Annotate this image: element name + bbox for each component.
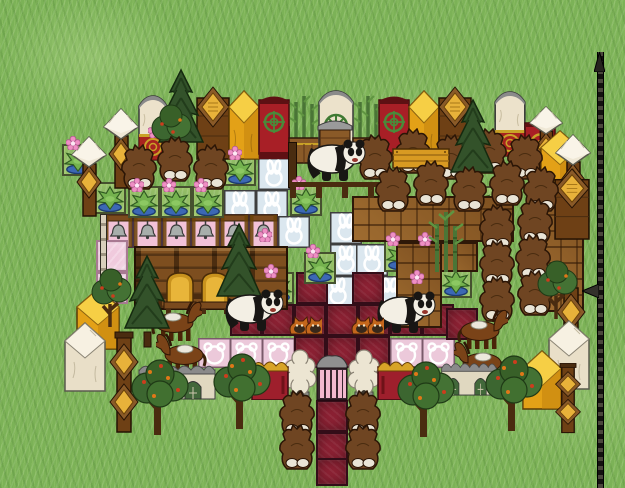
- red-panel-green-medallion-art: [258, 94, 290, 160]
- bunny-floor-tile[interactable]: [258, 158, 290, 190]
- bear-statue-art: [374, 166, 412, 212]
- bamboo-plant-art: [426, 206, 464, 272]
- bell-tile-art: [133, 214, 162, 248]
- spear-blade-icon: [582, 284, 599, 298]
- bell-tile-art: [162, 214, 191, 248]
- apple-tree[interactable]: [210, 346, 274, 430]
- spear[interactable]: [582, 52, 604, 488]
- pink-flower-art: [306, 244, 320, 258]
- bear-statue[interactable]: [374, 166, 412, 212]
- pink-flower[interactable]: [130, 178, 144, 192]
- bear-statue-art: [278, 424, 316, 470]
- fox-pair-art: [350, 312, 384, 336]
- bear-statue[interactable]: [156, 136, 194, 182]
- bear-statue[interactable]: [278, 424, 316, 470]
- bear-statue-art: [344, 424, 382, 470]
- pink-flower-art: [162, 178, 176, 192]
- white-block-art: [64, 322, 106, 392]
- plant-bed-tile-art: [194, 188, 222, 216]
- bamboo-plant[interactable]: [426, 206, 464, 272]
- apple-sapling-art: [534, 258, 580, 320]
- pink-flower[interactable]: [386, 232, 400, 246]
- apple-tree-art: [394, 354, 458, 438]
- apple-tree-art: [128, 352, 192, 436]
- pink-flower-art: [66, 136, 80, 150]
- bear-statue-art: [412, 160, 450, 206]
- pink-flower-art: [228, 146, 242, 160]
- fox-pair[interactable]: [350, 312, 384, 336]
- bear-statue[interactable]: [344, 424, 382, 470]
- plant-bed-tile-art: [130, 188, 158, 216]
- pink-flower-art: [264, 264, 278, 278]
- spear-tip-icon: [594, 52, 605, 72]
- pink-flower[interactable]: [194, 178, 208, 192]
- panda[interactable]: [302, 138, 366, 182]
- pink-flower[interactable]: [162, 178, 176, 192]
- apple-tree-art: [482, 348, 546, 432]
- apple-tree[interactable]: [128, 352, 192, 436]
- spear-pole[interactable]: [597, 52, 604, 488]
- pink-flower-art: [386, 232, 400, 246]
- bell-tile[interactable]: [162, 214, 191, 248]
- apple-tree[interactable]: [482, 348, 546, 432]
- pink-flower[interactable]: [306, 244, 320, 258]
- panda-art: [220, 288, 284, 332]
- apple-tree-art: [210, 346, 274, 430]
- plant-bed-tile-art: [306, 254, 334, 282]
- pink-flower[interactable]: [410, 270, 424, 284]
- apple-sapling[interactable]: [534, 258, 580, 320]
- pink-flower[interactable]: [66, 136, 80, 150]
- bell-tile[interactable]: [133, 214, 162, 248]
- fox-pair[interactable]: [288, 312, 322, 336]
- pink-flower[interactable]: [264, 264, 278, 278]
- apple-tree[interactable]: [394, 354, 458, 438]
- bunny-floor-tile-art: [258, 158, 290, 190]
- fox-pair-art: [288, 312, 322, 336]
- panda[interactable]: [220, 288, 284, 332]
- plant-bed-tile-art: [226, 156, 254, 184]
- pink-flower-art: [194, 178, 208, 192]
- bear-statue-art: [156, 136, 194, 182]
- plant-bed-tile-art: [442, 268, 470, 296]
- red-panel-green-medallion[interactable]: [258, 94, 290, 160]
- pink-flower-art: [410, 270, 424, 284]
- pink-flower[interactable]: [228, 146, 242, 160]
- white-block[interactable]: [64, 322, 106, 392]
- plant-bed-tile-art: [162, 188, 190, 216]
- totem-post-art: [552, 362, 584, 434]
- panda-art: [302, 138, 366, 182]
- game-world-canvas[interactable]: [0, 0, 625, 488]
- pink-flower-art: [130, 178, 144, 192]
- bear-statue[interactable]: [412, 160, 450, 206]
- totem-post[interactable]: [552, 362, 584, 434]
